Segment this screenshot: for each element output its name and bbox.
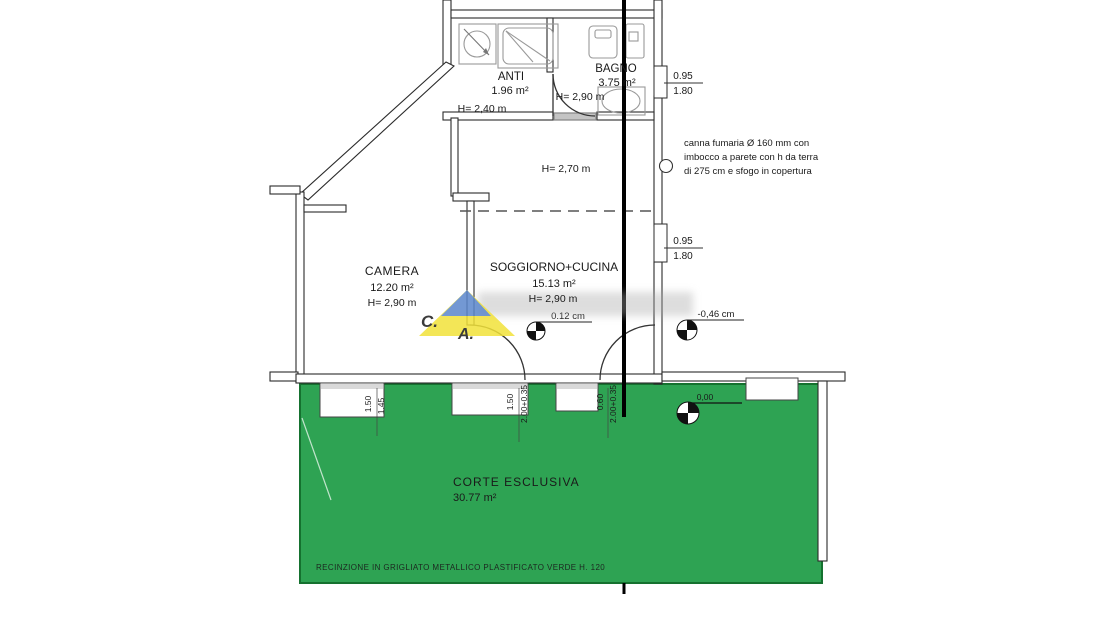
height-upper-soggiorno: H= 2,70 m (542, 163, 591, 175)
wall-diagonal (300, 62, 454, 200)
room-height-bagno: H= 2,90 m (556, 91, 605, 103)
dim-label: 1.80 (673, 86, 693, 97)
dim-label: 0.95 (673, 71, 693, 82)
wall-bottom (296, 374, 662, 383)
dim-label: 0.60 (595, 393, 605, 410)
wall-stub (270, 372, 298, 381)
wall-camera-left (296, 192, 304, 382)
quadrant-marker-icon (527, 331, 536, 340)
quadrant-marker-icon (677, 330, 687, 340)
quadrant-marker-icon (536, 322, 545, 331)
dim-label: 1.80 (673, 251, 693, 262)
wall (451, 10, 662, 18)
elevation-label: 0,00 (697, 392, 714, 402)
room-name-anti: ANTI (498, 71, 524, 83)
wall (451, 118, 458, 196)
wall-courtyard-right (818, 381, 827, 561)
window-right-mid: 0.95 1.80 (654, 224, 703, 262)
room-area-bagno: 3.75 m² (598, 77, 636, 89)
annotation-line: canna fumaria Ø 160 mm con (684, 138, 809, 149)
watermark-letter-a: A. (457, 326, 474, 343)
dim-label: 1.50 (363, 395, 373, 412)
wall (654, 96, 662, 226)
room-name-camera: CAMERA (365, 264, 419, 278)
annotation-line: di 275 cm e sfogo in copertura (684, 166, 813, 177)
washing-machine-icon (459, 24, 496, 64)
dim-label: 0.95 (673, 236, 693, 247)
room-height-soggiorno: H= 2,90 m (529, 293, 578, 305)
wall (453, 193, 489, 201)
courtyard-name: CORTE ESCLUSIVA (453, 475, 580, 489)
wall (443, 0, 451, 66)
fence-note: RECINZIONE IN GRIGLIATO METALLICO PLASTI… (316, 563, 605, 572)
watermark-letter-c: C. (421, 312, 438, 331)
wall (654, 262, 662, 384)
room-height-anti: H= 2,40 m (458, 103, 507, 115)
quadrant-marker-icon (687, 320, 697, 330)
toilet-icon (626, 24, 644, 58)
floor-plan-page: 0.95 1.80 0.95 1.80 1.50 1.45 1.50 2.00+… (0, 0, 1112, 628)
dim-label: 1.50 (505, 393, 515, 410)
door-sill (554, 113, 596, 120)
room-name-bagno: BAGNO (595, 63, 637, 75)
dim-label: 2.00+0.35 (608, 385, 618, 423)
flue-icon (660, 160, 673, 173)
dim-label: 2.00+0.35 (519, 385, 529, 423)
gate-opening (746, 378, 798, 400)
floor-plan-drawing: 0.95 1.80 0.95 1.80 1.50 1.45 1.50 2.00+… (0, 0, 1112, 628)
wall (654, 0, 662, 68)
window-right-top: 0.95 1.80 (654, 66, 703, 98)
elevation-label: -0,46 cm (698, 309, 735, 320)
flue-annotation: canna fumaria Ø 160 mm con imbocco a par… (684, 138, 819, 177)
room-area-camera: 12.20 m² (370, 282, 414, 294)
dim-label: 1.45 (376, 397, 386, 414)
room-name-soggiorno: SOGGIORNO+CUCINA (490, 260, 618, 274)
courtyard-area-label: 30.77 m² (453, 492, 497, 504)
washbasin-icon (598, 87, 645, 115)
room-area-anti: 1.96 m² (491, 85, 529, 97)
door-arc-right (600, 325, 655, 380)
annotation-line: imbocco a parete con h da terra (684, 152, 819, 163)
room-height-camera: H= 2,90 m (368, 297, 417, 309)
wall-nib (304, 205, 346, 212)
bidet-icon (589, 26, 617, 58)
room-area-soggiorno: 15.13 m² (532, 278, 576, 290)
wall-stub (270, 186, 300, 194)
watermark-blur (478, 292, 693, 316)
